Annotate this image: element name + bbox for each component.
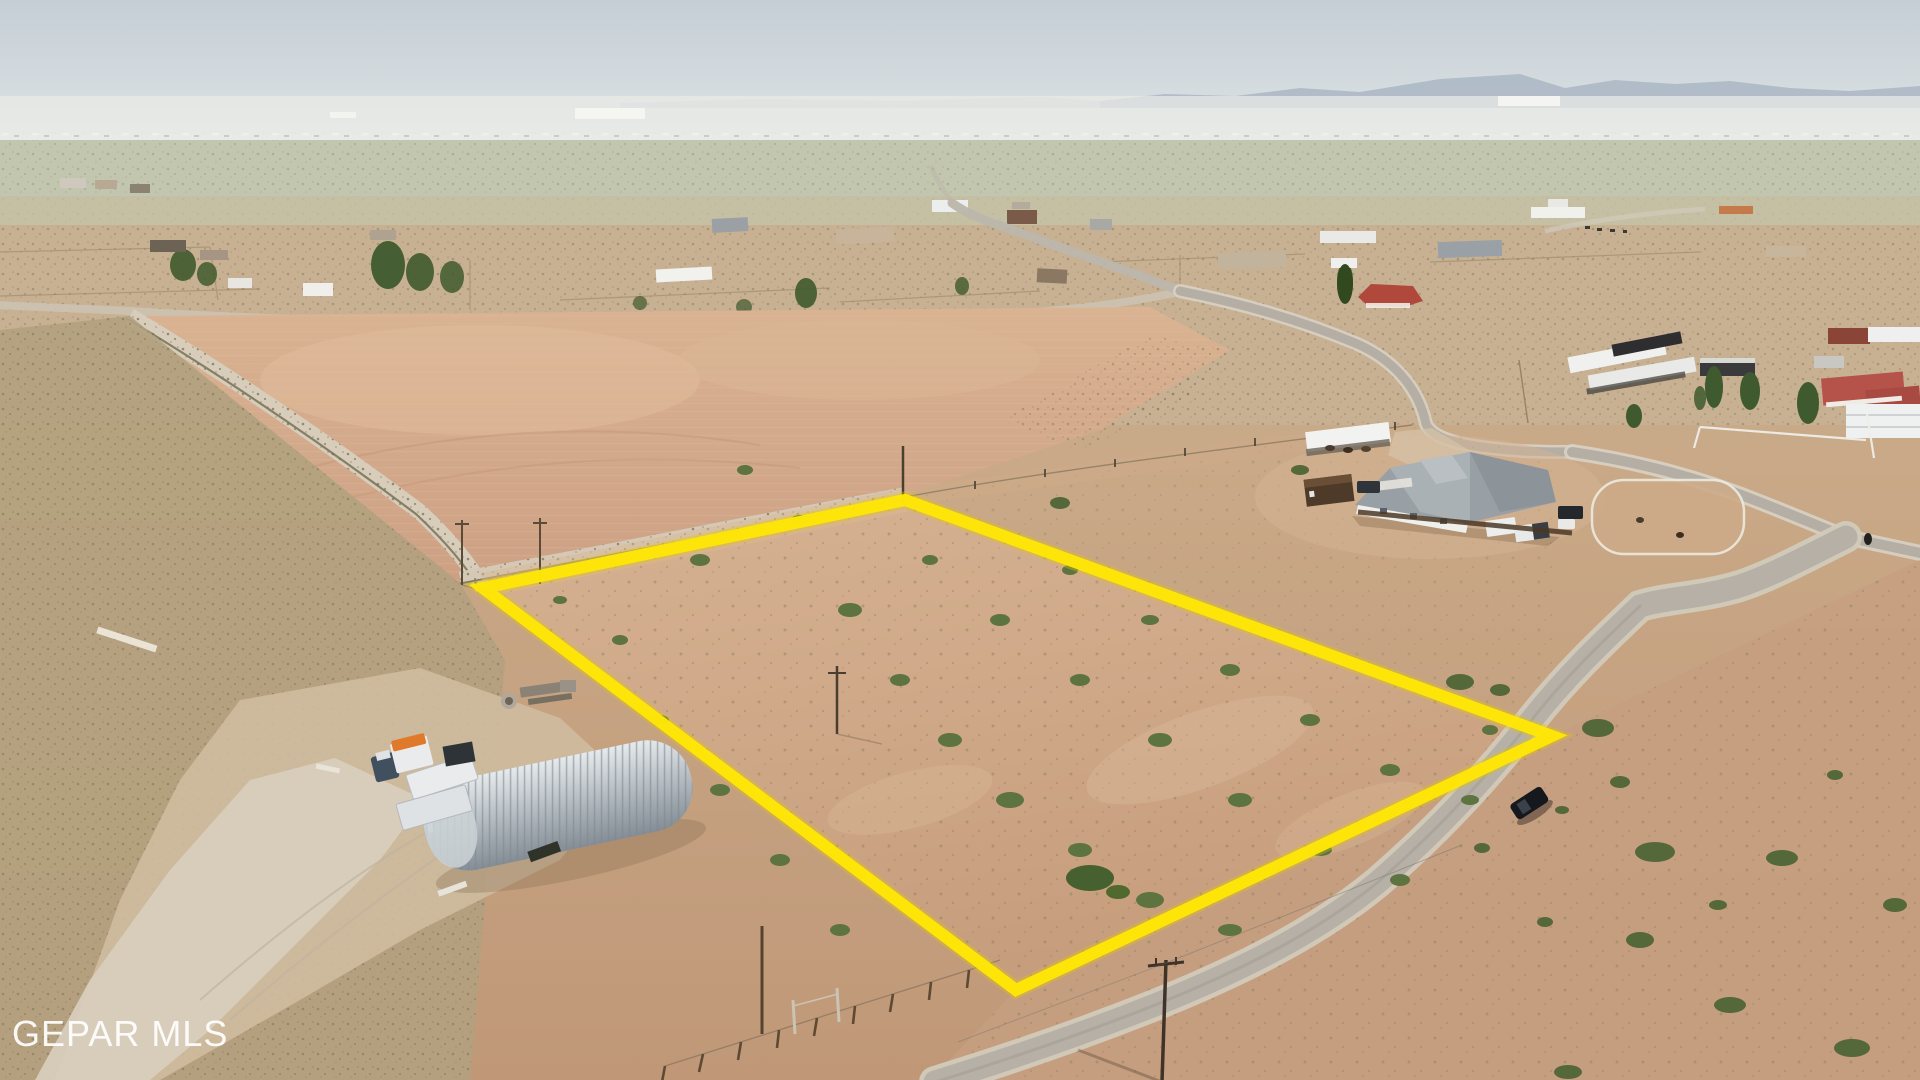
white-warehouse [1846,404,1920,438]
watermark: GEPAR MLS [12,1013,228,1054]
riding-arena [1592,480,1744,554]
parked-car [1558,519,1575,529]
parked-truck [1558,506,1583,519]
distant-valley [0,140,1920,236]
road-speck [1864,533,1872,545]
aerial-photo: GEPAR MLS [0,0,1920,1080]
dark-pickup [1357,481,1380,493]
sky [0,0,1920,154]
brick-building [1828,328,1870,344]
